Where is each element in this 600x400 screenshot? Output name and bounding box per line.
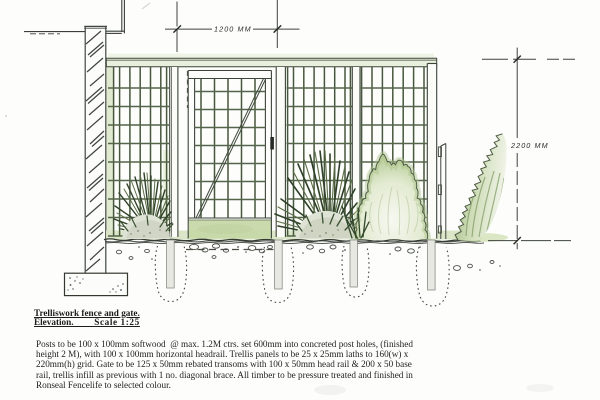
- svg-text:2200 MM: 2200 MM: [510, 141, 549, 150]
- svg-text:1200 MM: 1200 MM: [214, 25, 252, 34]
